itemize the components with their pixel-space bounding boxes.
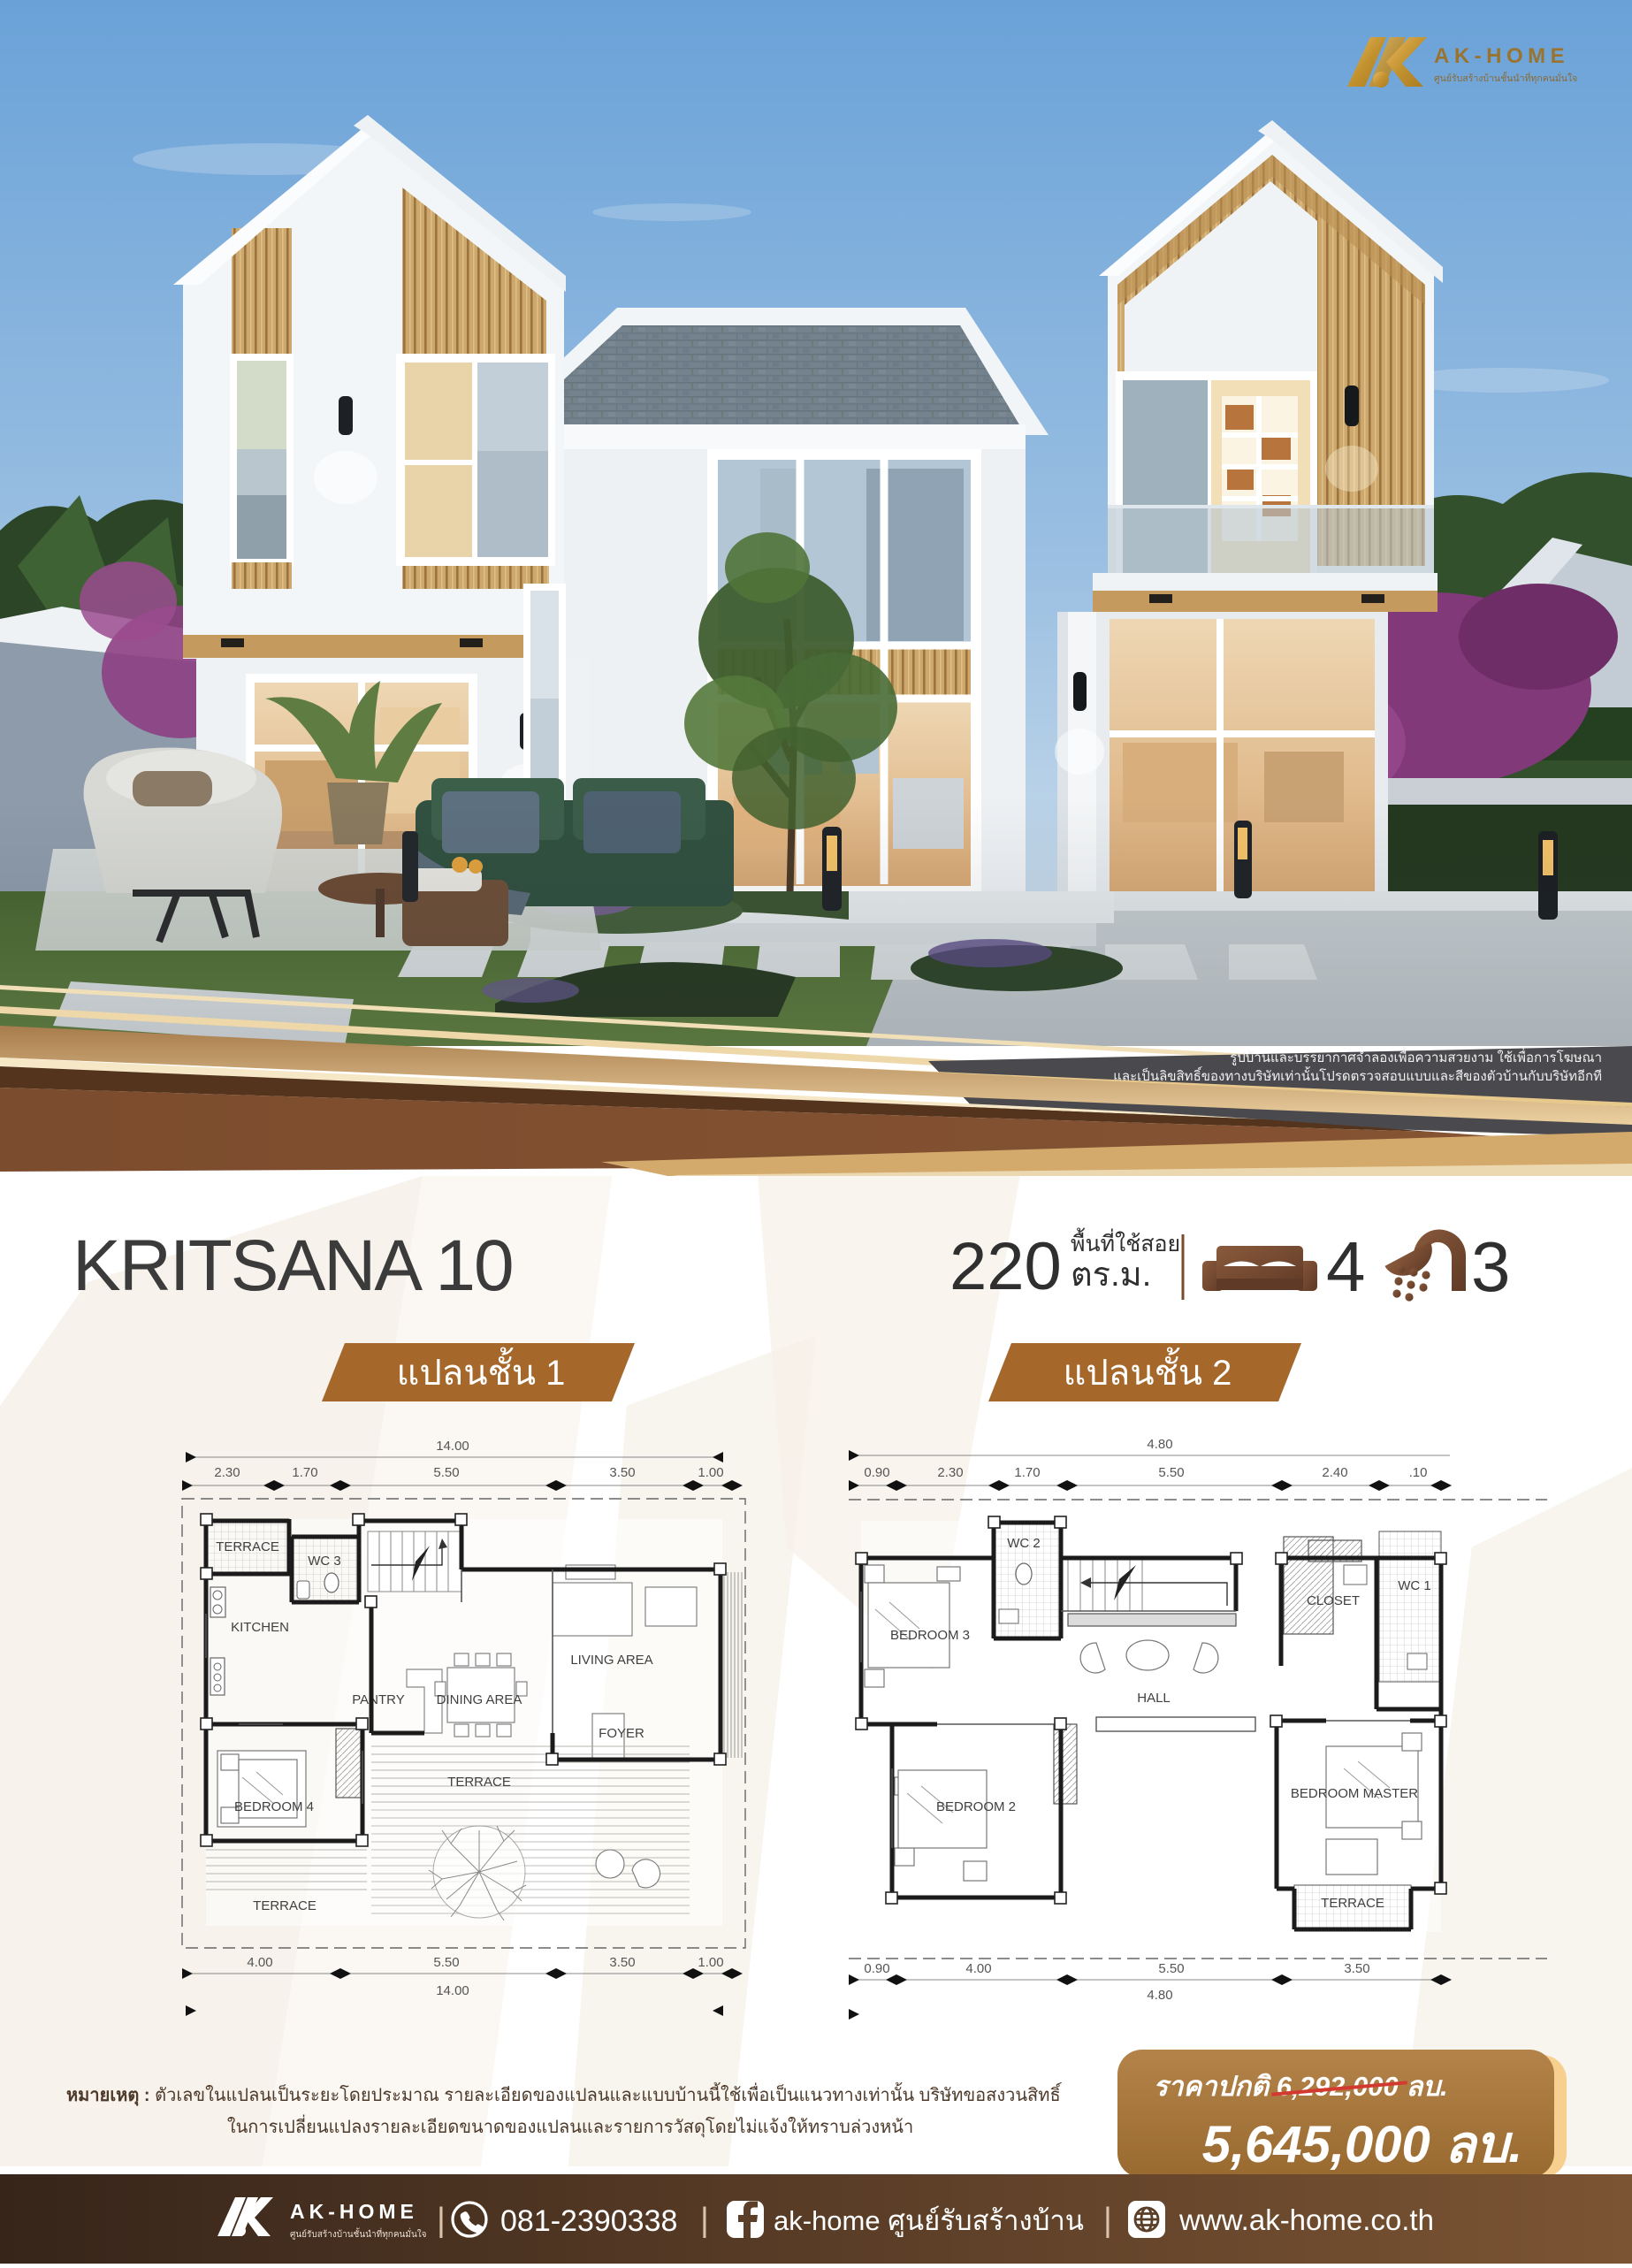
svg-text:2.30: 2.30 xyxy=(214,1465,240,1480)
svg-text:0.90: 0.90 xyxy=(864,1961,889,1976)
svg-text:BEDROOM MASTER: BEDROOM MASTER xyxy=(1291,1786,1418,1801)
svg-text:TERRACE: TERRACE xyxy=(216,1539,279,1554)
svg-text:5.50: 5.50 xyxy=(433,1465,459,1480)
svg-text:4: 4 xyxy=(1326,1227,1366,1306)
svg-text:และเป็นลิขสิทธิ์ของทางบริษัทเท: และเป็นลิขสิทธิ์ของทางบริษัทเท่านั้นโปรด… xyxy=(1113,1066,1602,1084)
svg-text:3.50: 3.50 xyxy=(609,1465,635,1480)
svg-text:|: | xyxy=(700,2202,709,2239)
svg-text:|: | xyxy=(437,2202,446,2239)
svg-text:5.50: 5.50 xyxy=(1158,1465,1184,1480)
svg-text:2.40: 2.40 xyxy=(1322,1465,1347,1480)
svg-text:5.50: 5.50 xyxy=(1158,1961,1184,1976)
svg-text:WC 1: WC 1 xyxy=(1398,1578,1431,1593)
svg-text:AK-HOME: AK-HOME xyxy=(1434,44,1569,68)
svg-text:|: | xyxy=(1103,2202,1112,2239)
svg-text:AK-HOME: AK-HOME xyxy=(290,2200,418,2223)
svg-text:CLOSET: CLOSET xyxy=(1307,1593,1360,1608)
svg-text:4.00: 4.00 xyxy=(247,1955,272,1970)
svg-text:TERRACE: TERRACE xyxy=(447,1775,511,1790)
svg-text:3.50: 3.50 xyxy=(609,1955,635,1970)
svg-text:3.50: 3.50 xyxy=(1344,1961,1369,1976)
svg-text:LIVING AREA: LIVING AREA xyxy=(570,1653,652,1668)
svg-text:ศูนย์รับสร้างบ้านชั้นนำที่ทุกค: ศูนย์รับสร้างบ้านชั้นนำที่ทุกคนมั่นใจ xyxy=(1434,72,1577,84)
svg-text:PANTRY: PANTRY xyxy=(352,1692,404,1707)
svg-text:14.00: 14.00 xyxy=(436,1439,469,1454)
svg-text:แปลนชั้น 1: แปลนชั้น 1 xyxy=(397,1347,566,1393)
svg-text:BEDROOM 4: BEDROOM 4 xyxy=(234,1799,314,1814)
svg-text:รูปบ้านและบรรยากาศจำลองเพื่อคว: รูปบ้านและบรรยากาศจำลองเพื่อความสวยงาม ใ… xyxy=(1230,1048,1602,1065)
svg-text:www.ak-home.co.th: www.ak-home.co.th xyxy=(1178,2203,1434,2236)
svg-text:1.00: 1.00 xyxy=(698,1465,723,1480)
svg-text:HALL: HALL xyxy=(1137,1691,1171,1706)
svg-text:พื้นที่ใช้สอย: พื้นที่ใช้สอย xyxy=(1071,1227,1180,1256)
svg-text:ตร.ม.: ตร.ม. xyxy=(1071,1256,1151,1294)
svg-text:BEDROOM 2: BEDROOM 2 xyxy=(936,1799,1016,1814)
svg-text:TERRACE: TERRACE xyxy=(1321,1896,1384,1911)
svg-text:KITCHEN: KITCHEN xyxy=(231,1620,289,1635)
svg-text:BEDROOM 3: BEDROOM 3 xyxy=(890,1628,970,1643)
svg-text:4.00: 4.00 xyxy=(965,1961,991,1976)
svg-text:ศูนย์รับสร้างบ้านชั้นนำที่ทุกค: ศูนย์รับสร้างบ้านชั้นนำที่ทุกคนมั่นใจ xyxy=(290,2227,427,2240)
svg-text:ak-home ศูนย์รับสร้างบ้าน: ak-home ศูนย์รับสร้างบ้าน xyxy=(774,2205,1084,2237)
svg-text:แปลนชั้น 2: แปลนชั้น 2 xyxy=(1064,1347,1232,1393)
svg-text:2.30: 2.30 xyxy=(937,1465,963,1480)
svg-text:1.00: 1.00 xyxy=(698,1955,723,1970)
svg-text:TERRACE: TERRACE xyxy=(253,1898,316,1913)
svg-text:1.70: 1.70 xyxy=(292,1465,317,1480)
svg-text:4.80: 4.80 xyxy=(1147,1437,1172,1452)
svg-text:14.00: 14.00 xyxy=(436,1983,469,1998)
svg-text:FOYER: FOYER xyxy=(599,1726,644,1741)
svg-text:220: 220 xyxy=(949,1229,1062,1304)
svg-text:3: 3 xyxy=(1471,1227,1511,1306)
svg-text:DINING AREA: DINING AREA xyxy=(437,1692,522,1707)
svg-text:WC 3: WC 3 xyxy=(308,1554,341,1569)
svg-text:5.50: 5.50 xyxy=(433,1955,459,1970)
svg-text:1.70: 1.70 xyxy=(1014,1465,1040,1480)
svg-text:.10: .10 xyxy=(1409,1465,1428,1480)
svg-text:WC 2: WC 2 xyxy=(1007,1536,1041,1551)
svg-text:081-2390338: 081-2390338 xyxy=(500,2204,677,2238)
svg-text:4.80: 4.80 xyxy=(1147,1988,1172,2003)
svg-text:0.90: 0.90 xyxy=(864,1465,889,1480)
